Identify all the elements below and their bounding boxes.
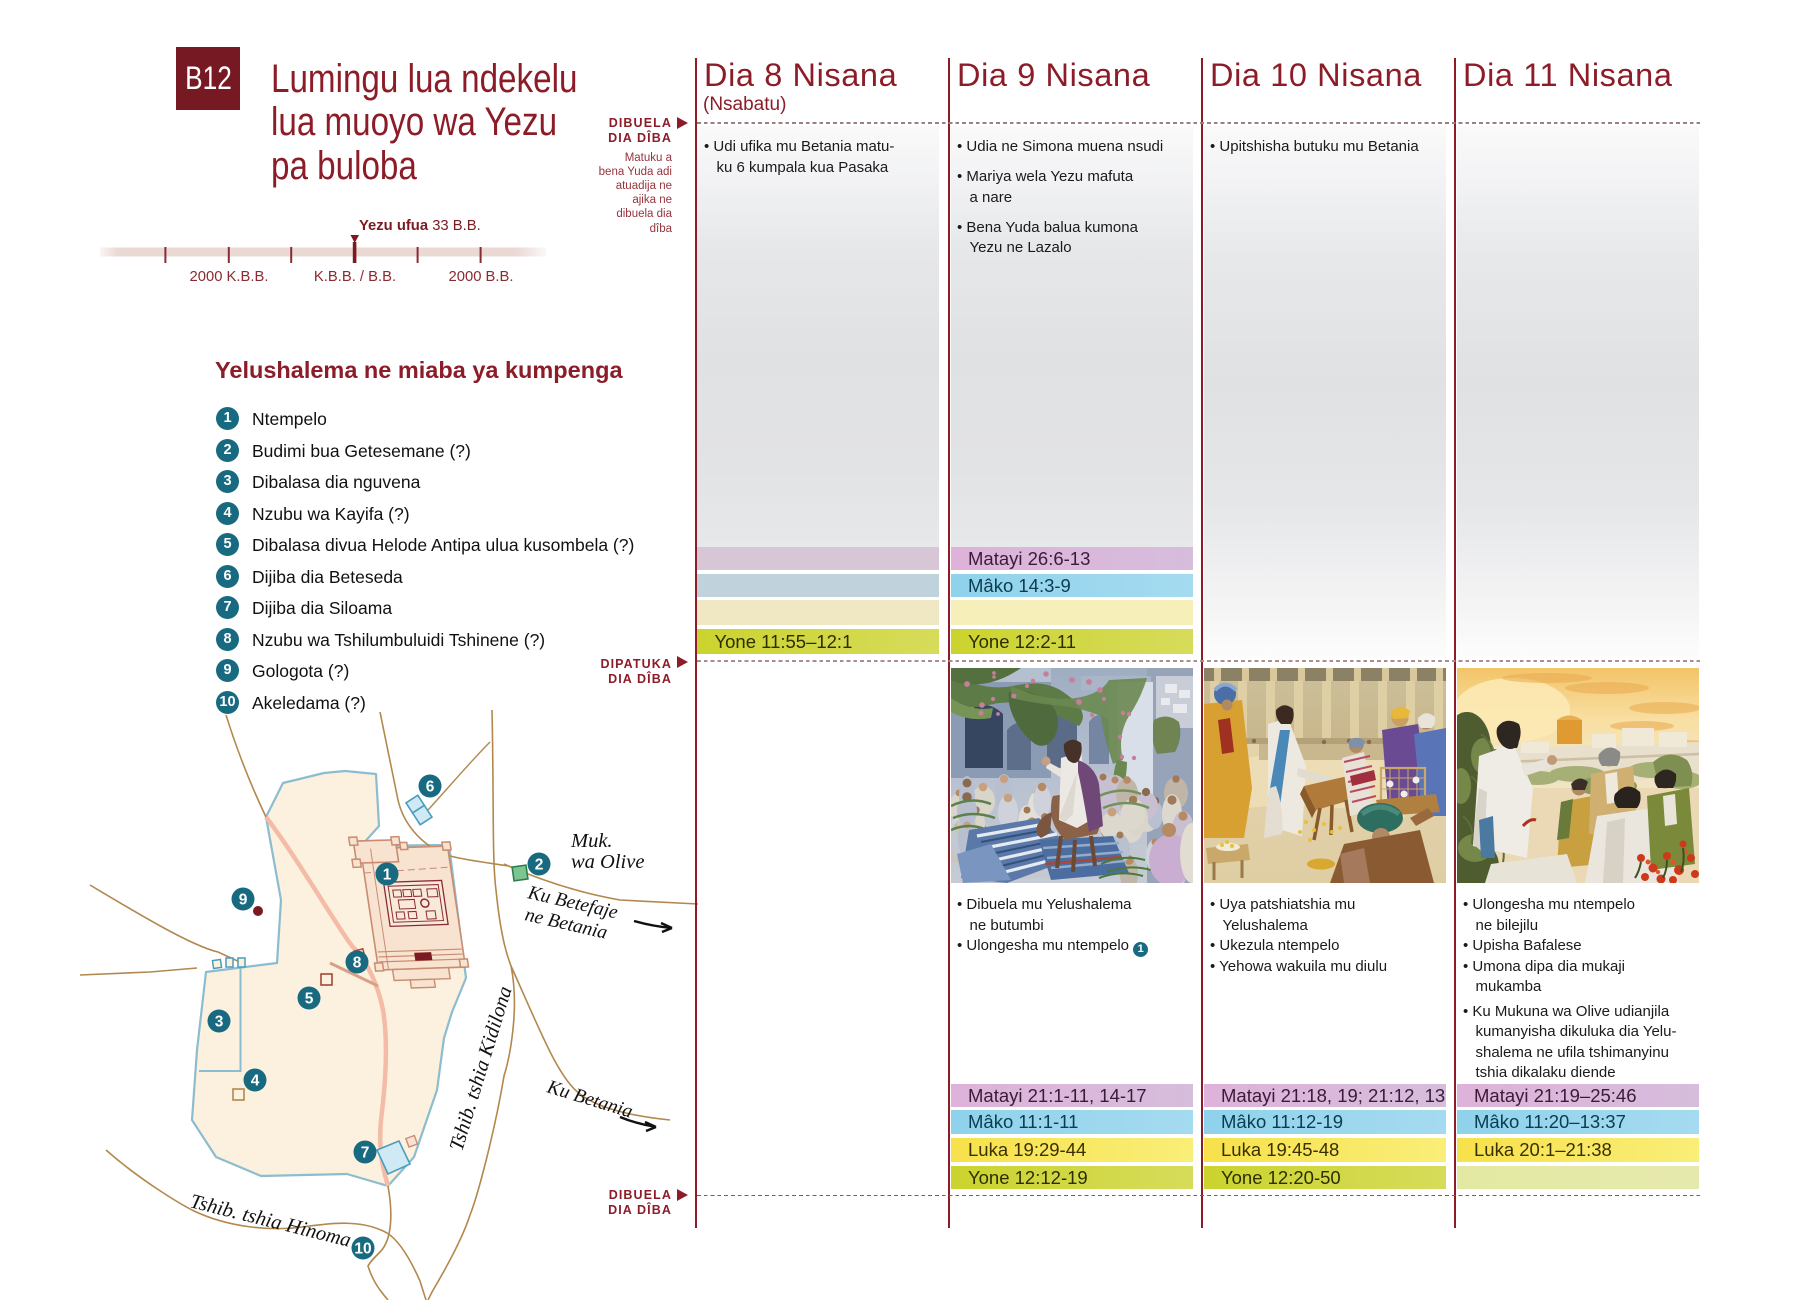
svg-text:wa Olive: wa Olive bbox=[571, 851, 644, 873]
svg-text:6: 6 bbox=[426, 779, 435, 796]
svg-text:Yezu ufua 33 B.B.: Yezu ufua 33 B.B. bbox=[359, 218, 481, 234]
svg-text:2000 K.B.B.: 2000 K.B.B. bbox=[190, 269, 269, 285]
svg-text:Muk.: Muk. bbox=[570, 830, 613, 852]
svg-text:2: 2 bbox=[535, 857, 544, 874]
svg-text:9: 9 bbox=[239, 892, 248, 909]
svg-text:3: 3 bbox=[215, 1014, 224, 1031]
svg-text:K.B.B. / B.B.: K.B.B. / B.B. bbox=[314, 269, 396, 285]
svg-text:2000 B.B.: 2000 B.B. bbox=[449, 269, 514, 285]
svg-text:10: 10 bbox=[354, 1241, 371, 1258]
svg-text:Ku Betania: Ku Betania bbox=[544, 1076, 636, 1122]
svg-text:1: 1 bbox=[383, 867, 392, 884]
svg-text:Tshib. tshia Hinoma: Tshib. tshia Hinoma bbox=[188, 1191, 353, 1252]
svg-text:8: 8 bbox=[353, 955, 362, 972]
svg-text:7: 7 bbox=[361, 1145, 370, 1162]
svg-text:4: 4 bbox=[251, 1073, 260, 1090]
svg-text:5: 5 bbox=[305, 991, 314, 1008]
